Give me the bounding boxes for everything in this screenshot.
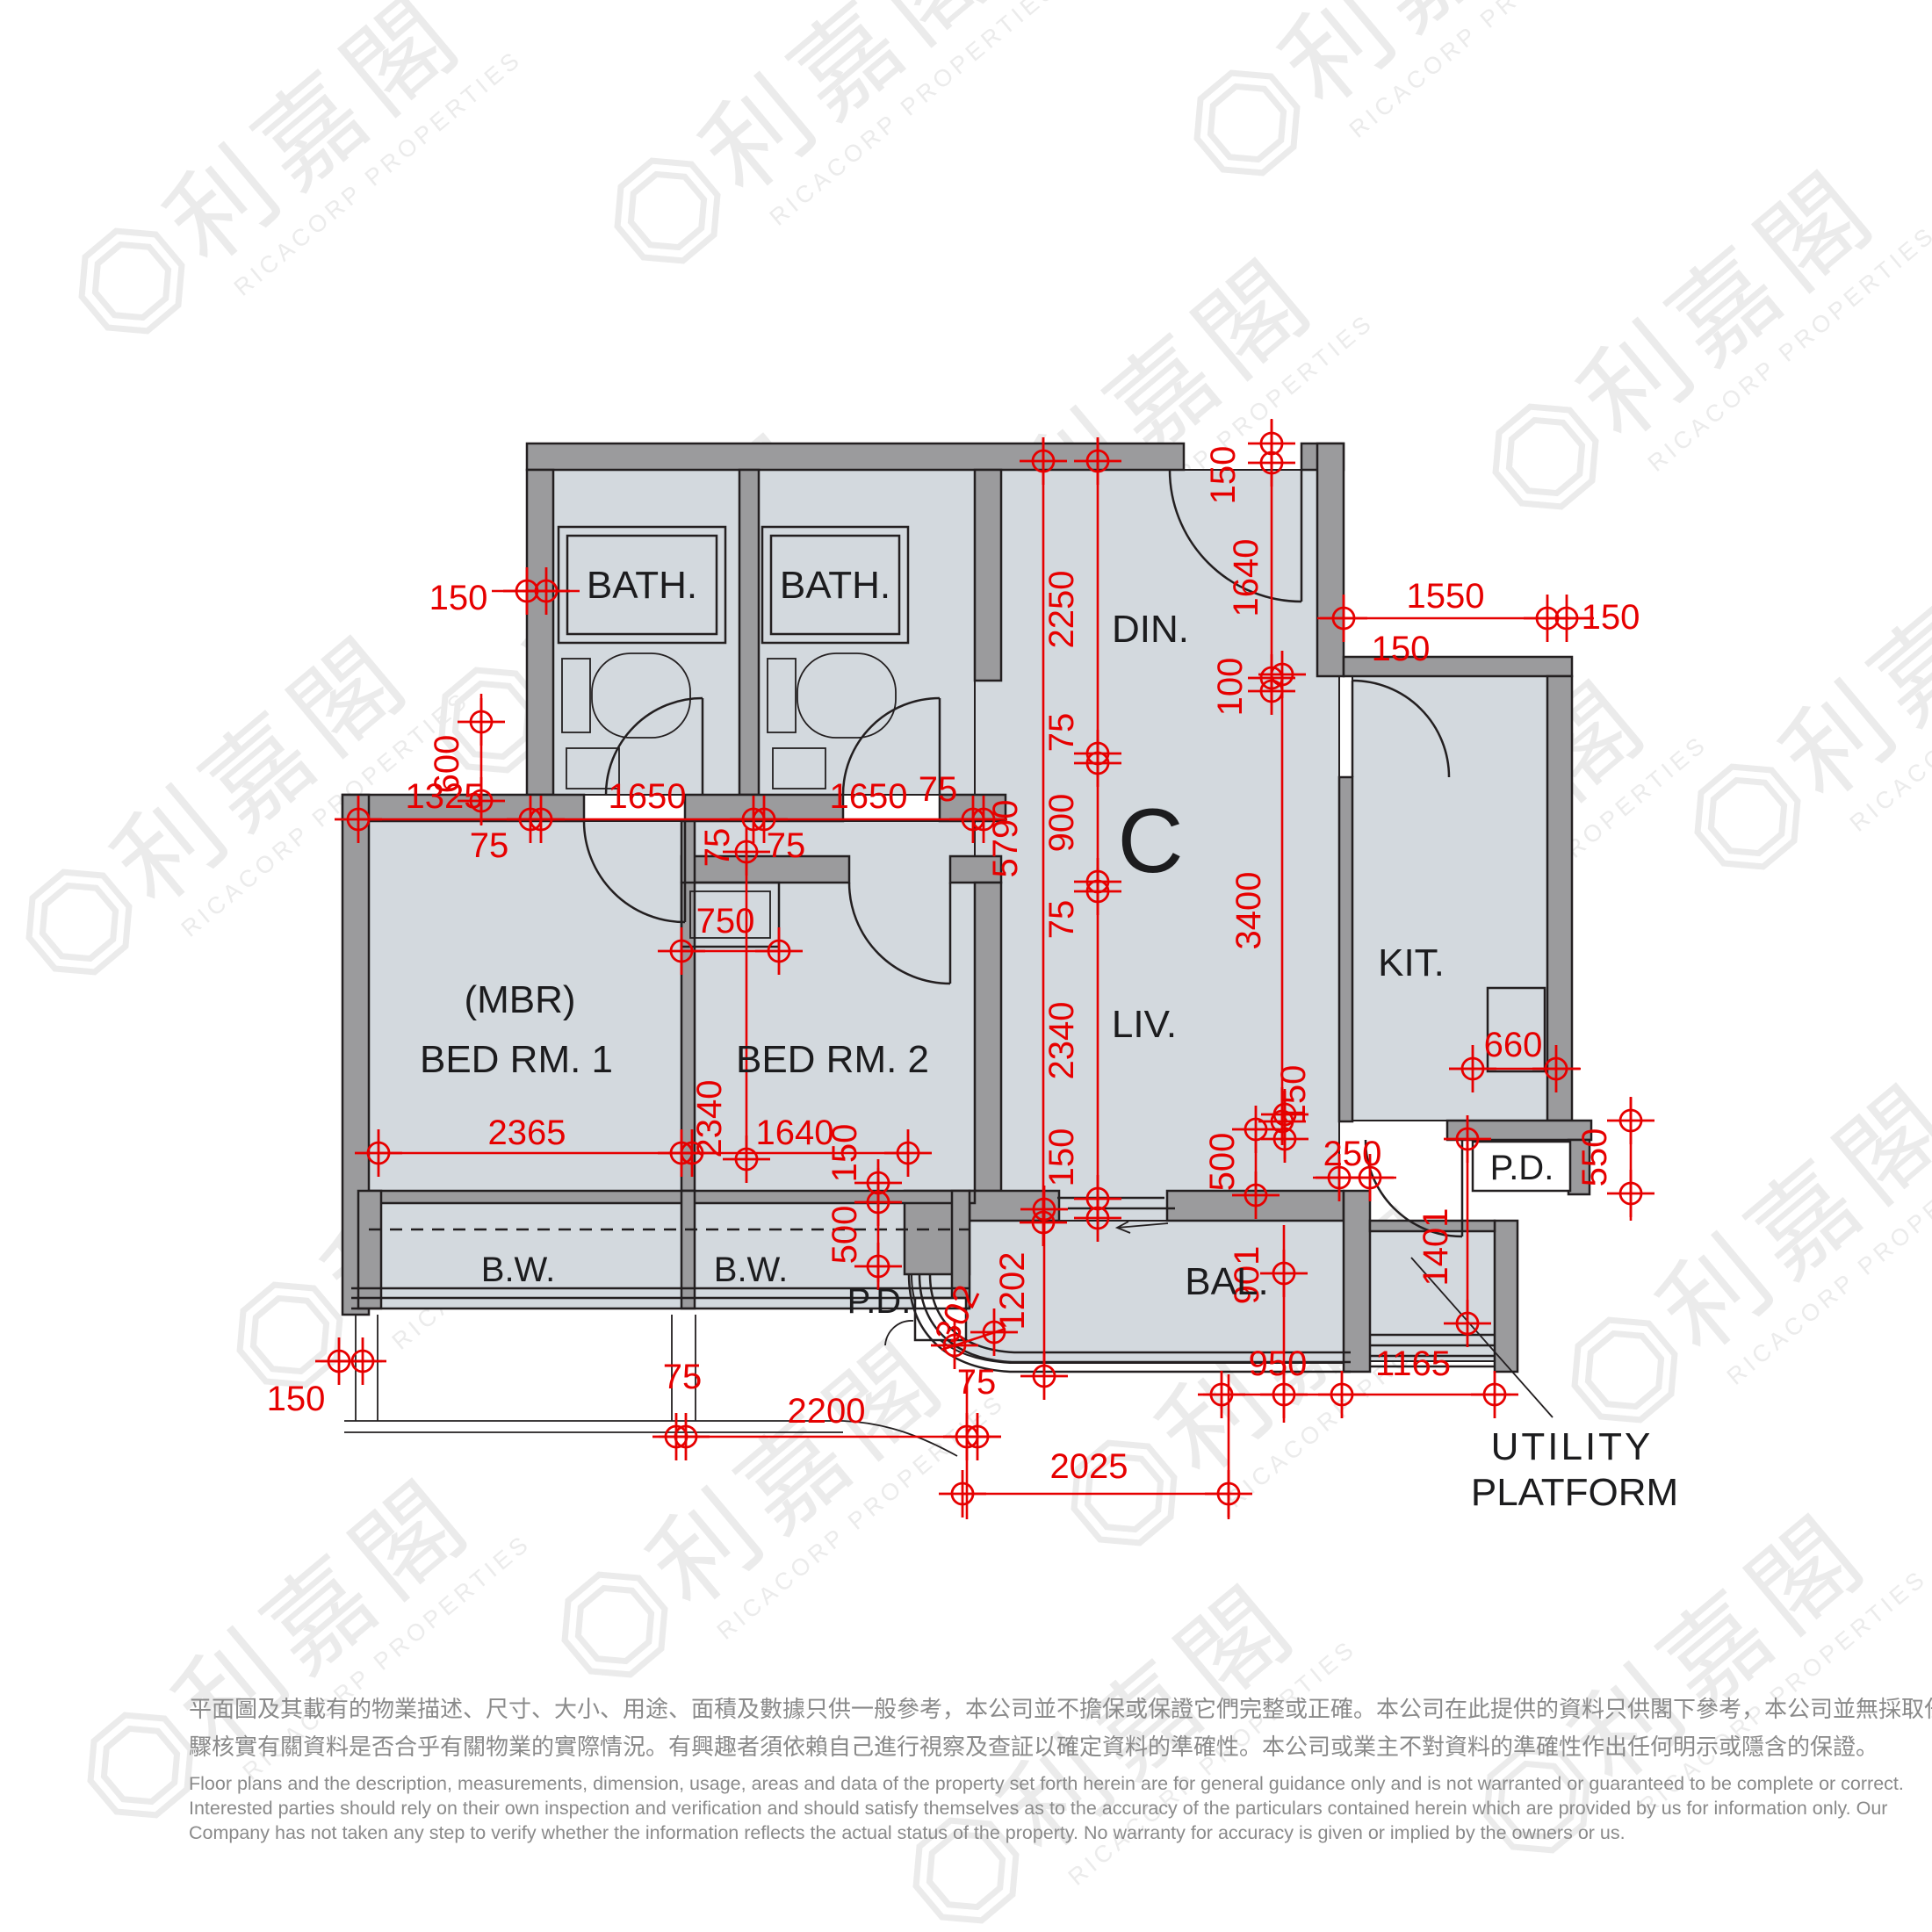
dim-1650-b: 1650 — [830, 777, 908, 816]
room-label-pd-left: P.D. — [847, 1282, 912, 1321]
dim-75-f: 75 — [1042, 900, 1081, 940]
dim-75-c: 75 — [698, 828, 737, 868]
dim-75-h: 75 — [957, 1363, 997, 1402]
dim-150-bottomleft: 150 — [267, 1380, 326, 1418]
room-label-bath-2: BATH. — [780, 564, 890, 607]
dim-2340-a: 2340 — [1042, 1002, 1081, 1080]
dim-500-right: 500 — [1203, 1133, 1242, 1192]
dim-75-g: 75 — [663, 1358, 703, 1396]
bath-block-floor — [553, 470, 975, 795]
bw-jamb-left — [358, 1191, 381, 1308]
wall-bath-divider — [739, 470, 759, 795]
dim-150-bathwall: 150 — [429, 579, 488, 617]
room-label-bal: BAL. — [1185, 1260, 1268, 1303]
dim-500-left: 500 — [825, 1206, 864, 1265]
dim-1640-bed2: 1640 — [756, 1114, 834, 1152]
wall-top-left — [527, 443, 1184, 470]
dim-2340-b: 2340 — [690, 1080, 729, 1158]
dim-150-right: 150 — [1582, 598, 1640, 637]
wall-bed2-liv-divider — [975, 883, 1001, 1191]
bw-jamb-mid — [681, 1191, 695, 1308]
disclaimer-en-line3: Company has not taken any step to verify… — [189, 1822, 1626, 1843]
dim-150-kit: 150 — [1274, 1065, 1313, 1124]
room-label-bw-2: B.W. — [714, 1251, 788, 1289]
label-utility-line2: PLATFORM — [1471, 1471, 1678, 1514]
room-label-din: DIN. — [1112, 608, 1189, 651]
disclaimer-zh-line2: 驟核實有關資料是否合乎有關物業的實際情況。有興趣者須依賴自己進行視察及查証以確定… — [189, 1734, 1878, 1760]
disclaimer-en-line2: Interested parties should rely on their … — [189, 1798, 1887, 1819]
dim-1325: 1325 — [406, 777, 484, 816]
unit-label-c: C — [1117, 790, 1183, 892]
dim-75-a: 75 — [919, 770, 958, 809]
dim-100: 100 — [1211, 658, 1250, 717]
disclaimer-zh-line1: 平面圖及其載有的物業描述、尺寸、大小、用途、面積及數據只供一般參考，本公司並不擔… — [189, 1696, 1932, 1722]
room-label-bw-1: B.W. — [481, 1251, 555, 1289]
wall-bath-left — [527, 470, 553, 795]
dim-5790: 5790 — [986, 800, 1025, 878]
wall-kitchen-bottom — [1447, 1121, 1591, 1140]
dim-950: 950 — [1249, 1344, 1308, 1383]
room-label-mbr-line1: (MBR) — [464, 978, 575, 1021]
dim-75-d: 75 — [767, 826, 806, 865]
floorplan-page: 利嘉閣 RICACORP PROPERTIES — [0, 0, 1932, 1932]
dim-900: 900 — [1042, 794, 1081, 853]
room-label-kit: KIT. — [1378, 941, 1445, 984]
dim-2365: 2365 — [488, 1114, 566, 1152]
floorplan-svg: 利嘉閣 RICACORP PROPERTIES — [0, 0, 1932, 1932]
dim-2200: 2200 — [788, 1392, 866, 1431]
wall-bath-right — [975, 470, 1001, 681]
room-label-bed2: BED RM. 2 — [736, 1038, 929, 1081]
dim-3400: 3400 — [1229, 872, 1268, 950]
dim-1640-entry: 1640 — [1227, 539, 1265, 617]
room-label-pd-right: P.D. — [1490, 1149, 1554, 1187]
room-label-mbr-line2: BED RM. 1 — [420, 1038, 613, 1081]
dim-2025: 2025 — [1050, 1447, 1128, 1486]
wall-kitchen-right — [1547, 676, 1572, 1121]
dim-1650-a: 1650 — [609, 777, 687, 816]
wall-din-right — [1317, 443, 1344, 676]
dim-1165: 1165 — [1375, 1344, 1451, 1383]
wall-utility-right — [1495, 1221, 1517, 1372]
dim-75-e: 75 — [1042, 713, 1081, 753]
room-label-bath-1: BATH. — [587, 564, 697, 607]
wall-liv-bottom-a — [970, 1191, 1059, 1221]
dim-2250: 2250 — [1042, 571, 1081, 649]
dim-1202: 1202 — [993, 1252, 1032, 1330]
dim-150-below: 150 — [1372, 630, 1431, 668]
dim-1401: 1401 — [1417, 1208, 1455, 1287]
dim-750: 750 — [696, 902, 755, 941]
room-label-liv: LIV. — [1112, 1003, 1177, 1046]
dim-150-bw: 150 — [825, 1124, 864, 1183]
dim-660: 660 — [1484, 1026, 1543, 1064]
dim-150-center: 150 — [1042, 1128, 1081, 1187]
label-utility-line1: UTILITY — [1491, 1425, 1654, 1468]
wall-kitchen-left — [1339, 777, 1352, 1121]
dim-150-entry: 150 — [1204, 446, 1243, 505]
dim-75-b: 75 — [470, 826, 509, 865]
dim-1550: 1550 — [1407, 577, 1485, 616]
dim-550: 550 — [1575, 1128, 1614, 1187]
column-balcony-right — [1344, 1191, 1370, 1372]
disclaimer-en-line1: Floor plans and the description, measure… — [189, 1773, 1904, 1794]
dim-250: 250 — [1323, 1135, 1382, 1173]
